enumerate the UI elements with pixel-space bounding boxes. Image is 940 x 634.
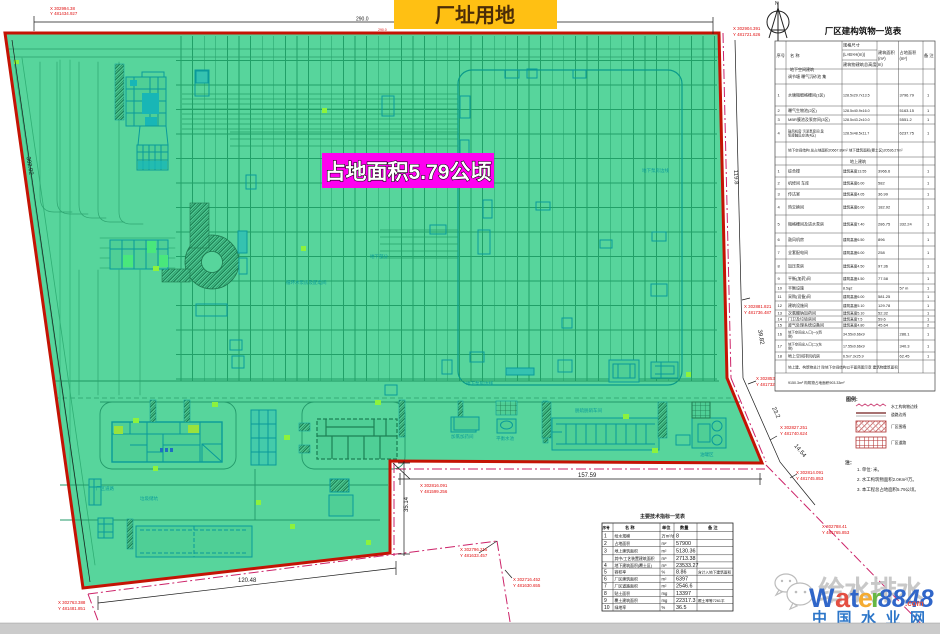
svg-text:给水规模: 给水规模	[615, 533, 631, 538]
svg-text:9150.3m² 构筑物占地面积903.33m²: 9150.3m² 构筑物占地面积903.33m²	[788, 380, 845, 385]
svg-text:X 302763.388: X 302763.388	[58, 600, 86, 605]
svg-text:采购(设备)间: 采购(设备)间	[788, 293, 811, 299]
svg-text:3: 3	[604, 549, 607, 555]
svg-text:地下泵房边线: 地下泵房边线	[466, 380, 493, 387]
svg-text:建筑面积: 建筑面积	[878, 49, 895, 56]
svg-text:Y 481765.853: Y 481765.853	[822, 530, 850, 535]
svg-text:3796.79: 3796.79	[900, 93, 915, 98]
svg-text:8: 8	[676, 533, 679, 539]
svg-text:道路边线: 道路边线	[891, 412, 906, 417]
svg-text:水塘粗细格栅间(1区): 水塘粗细格栅间(1区)	[788, 92, 826, 98]
svg-text:57900: 57900	[676, 541, 691, 547]
svg-text:6.5x7.3x25.9: 6.5x7.3x25.9	[843, 355, 864, 359]
svg-text:循环水泵房及配电间: 循环水泵房及配电间	[286, 279, 327, 286]
svg-text:X 302716.452: X 302716.452	[513, 577, 541, 582]
svg-text:m²: m²	[662, 577, 667, 582]
svg-text:建筑高度4.50: 建筑高度4.50	[843, 276, 864, 281]
svg-text:m²: m²	[662, 541, 667, 546]
svg-text:绿地率: 绿地率	[615, 605, 627, 610]
svg-text:地下建筑面积(覆土区): 地下建筑面积(覆土区)	[615, 563, 653, 568]
svg-text:传达室: 传达室	[788, 191, 800, 197]
svg-text:(m²): (m²)	[878, 56, 886, 61]
svg-text:62.45: 62.45	[900, 354, 911, 359]
svg-text:7: 7	[604, 584, 607, 590]
svg-text:128.5x43.2x10.0: 128.5x43.2x10.0	[843, 118, 870, 122]
svg-text:10: 10	[778, 286, 783, 291]
svg-text:单位: 单位	[662, 524, 671, 531]
svg-text:W: W	[809, 583, 835, 613]
svg-text:曝气生物池(2区): 曝气生物池(2区)	[788, 107, 818, 113]
svg-text:加压泵房: 加压泵房	[788, 263, 804, 269]
svg-text:8: 8	[604, 591, 607, 597]
svg-text:Y 481633.457: Y 481633.457	[460, 553, 488, 558]
svg-text:157.59: 157.59	[578, 473, 597, 479]
svg-text:规格尺寸: 规格尺寸	[843, 42, 860, 49]
svg-text:注：: 注：	[845, 459, 855, 466]
svg-text:脱硫脱硝车间: 脱硫脱硝车间	[575, 407, 602, 414]
svg-text:氧接触反应池(4区): 氧接触反应池(4区)	[788, 133, 816, 138]
svg-text:16: 16	[778, 332, 783, 337]
svg-text:厂址用地: 厂址用地	[435, 4, 515, 27]
svg-text:52.32: 52.32	[878, 311, 889, 316]
svg-text:侧): 侧)	[788, 346, 793, 351]
svg-text:Y 481721.626: Y 481721.626	[733, 32, 761, 37]
svg-text:128.5x48.5x11.7: 128.5x48.5x11.7	[843, 132, 869, 136]
svg-text:36.99: 36.99	[878, 192, 889, 197]
svg-text:119.8: 119.8	[732, 170, 739, 186]
svg-text:建筑设施间: 建筑设施间	[788, 302, 808, 308]
svg-text:5163.15: 5163.15	[900, 108, 915, 113]
svg-text:120.48: 120.48	[238, 578, 257, 584]
svg-text:粗格栅间及进水泵房: 粗格栅间及进水泵房	[788, 221, 824, 227]
svg-text:17: 17	[778, 344, 783, 349]
svg-text:油罐区: 油罐区	[700, 451, 714, 458]
svg-text:13397: 13397	[676, 591, 691, 597]
svg-text:Y 481736.487: Y 481736.487	[744, 310, 772, 315]
svg-text:12: 12	[778, 303, 783, 308]
svg-text:建筑高度6.00: 建筑高度6.00	[843, 250, 864, 255]
svg-text:6237.75: 6237.75	[900, 131, 915, 136]
svg-text:建筑高度13.55: 建筑高度13.55	[843, 169, 866, 174]
svg-text:建筑高度5.10: 建筑高度5.10	[843, 311, 864, 316]
svg-text:286.1: 286.1	[900, 332, 911, 337]
svg-text:X 302881.821: X 302881.821	[744, 304, 772, 309]
svg-text:1: 1	[604, 533, 607, 539]
svg-text:896: 896	[878, 237, 885, 242]
svg-text:8.5φ2: 8.5φ2	[843, 287, 852, 291]
svg-text:MBR膜池及泵房间(3区): MBR膜池及泵房间(3区)	[788, 116, 830, 122]
svg-text:序号: 序号	[777, 52, 785, 59]
svg-text:59.6: 59.6	[878, 317, 887, 322]
svg-text:m²: m²	[662, 584, 667, 589]
svg-text:含计入地下建筑面积: 含计入地下建筑面积	[698, 570, 731, 575]
svg-text:582: 582	[878, 181, 885, 186]
svg-text:6: 6	[604, 577, 607, 583]
svg-text:调节塘 曝气沉砂池 集: 调节塘 曝气沉砂池 集	[788, 73, 826, 79]
svg-text:数量: 数量	[680, 524, 689, 531]
svg-text:2: 2	[604, 541, 607, 547]
svg-text:名 称: 名 称	[790, 52, 800, 59]
svg-text:Y 481599.256: Y 481599.256	[420, 489, 448, 494]
svg-text:m²: m²	[662, 549, 667, 554]
svg-text:覆土率等7261平: 覆土率等7261平	[698, 598, 725, 603]
svg-text:X 302827.251: X 302827.251	[780, 425, 808, 430]
svg-text:废气处理系统设备间: 废气处理系统设备间	[788, 322, 824, 328]
svg-text:%: %	[662, 605, 666, 610]
svg-text:建筑高度6.00: 建筑高度6.00	[843, 294, 864, 299]
svg-text:门卫及垃圾房间: 门卫及垃圾房间	[788, 316, 816, 322]
svg-text:地下空间出入口(一)(西: 地下空间出入口(一)(西	[788, 330, 823, 335]
svg-text:128.5x29.7x13.5: 128.5x29.7x13.5	[843, 94, 870, 98]
svg-text:备 注: 备 注	[708, 524, 718, 531]
svg-text:3. 本工程总占地面积5.79公顷。: 3. 本工程总占地面积5.79公顷。	[857, 486, 919, 493]
svg-text:2713.38: 2713.38	[676, 556, 696, 562]
svg-text:a: a	[835, 583, 851, 613]
svg-text:容积率: 容积率	[615, 570, 627, 575]
svg-text:次氯酸钠加药间: 次氯酸钠加药间	[788, 310, 816, 316]
svg-text:其中/工艺装置建筑面积: 其中/工艺装置建筑面积	[615, 556, 655, 561]
svg-text:Y 481745.853: Y 481745.853	[796, 476, 824, 481]
svg-text:Y 481434.927: Y 481434.927	[50, 11, 78, 16]
svg-text:厂区道路: 厂区道路	[891, 440, 906, 445]
svg-text:厂区建构筑物一览表: 厂区建构筑物一览表	[825, 26, 902, 36]
svg-text:340.3: 340.3	[900, 344, 911, 349]
svg-text:地上建、构筑物总计 除地下空间结构以平面简图示意 建筑物建: 地上建、构筑物总计 除地下空间结构以平面简图示意 建筑物建筑面积	[788, 365, 898, 370]
svg-text:鼓风机房: 鼓风机房	[788, 236, 804, 242]
svg-text:厂区道路面积: 厂区道路面积	[615, 584, 638, 589]
svg-text:290.0: 290.0	[378, 28, 387, 32]
svg-text:X 302814.091: X 302814.091	[796, 470, 824, 475]
svg-text:X 302796.216: X 302796.216	[460, 547, 488, 552]
svg-text:建筑高度7.40: 建筑高度7.40	[843, 222, 864, 227]
svg-text:N: N	[775, 1, 779, 7]
svg-text:占地面积5.79公顷: 占地面积5.79公顷	[325, 160, 492, 184]
svg-text:581.25: 581.25	[878, 294, 891, 299]
svg-text:平衡水池: 平衡水池	[496, 435, 514, 442]
svg-text:8.86: 8.86	[676, 570, 687, 576]
svg-text:mg: mg	[662, 591, 668, 596]
svg-text:地下空间出入口(二)(东: 地下空间出入口(二)(东	[788, 342, 823, 347]
svg-text:综合楼: 综合楼	[788, 168, 800, 174]
svg-text:加氯加药间: 加氯加药间	[451, 433, 474, 440]
svg-text:地下泵房边线: 地下泵房边线	[642, 167, 669, 174]
svg-text:建筑高度6.50: 建筑高度6.50	[843, 237, 864, 242]
svg-text:10: 10	[604, 605, 610, 611]
svg-text:平衡(加药)间: 平衡(加药)间	[788, 275, 811, 281]
svg-text:182.92: 182.92	[878, 205, 891, 210]
svg-text:57 m: 57 m	[900, 286, 910, 291]
svg-text:X 302816.091: X 302816.091	[420, 483, 448, 488]
svg-text:机修间 车库: 机修间 车库	[788, 180, 809, 186]
svg-text:45.64: 45.64	[878, 323, 889, 328]
svg-text:覆土建筑面积: 覆土建筑面积	[615, 598, 638, 603]
svg-text:2546.6: 2546.6	[676, 584, 693, 590]
svg-text:3966.6: 3966.6	[878, 169, 891, 174]
svg-text:2. 水工构筑物面积2.0Km²/万。: 2. 水工构筑物面积2.0Km²/万。	[857, 476, 917, 483]
svg-text:9: 9	[604, 598, 607, 604]
svg-text:97.36: 97.36	[878, 264, 889, 269]
svg-text:m³: m³	[662, 556, 667, 561]
svg-text:m³: m³	[662, 563, 667, 568]
svg-text:14: 14	[778, 317, 783, 322]
svg-text:建筑物建筑总高度(m): 建筑物建筑总高度(m)	[843, 61, 883, 68]
svg-text:77.58: 77.58	[878, 276, 889, 281]
svg-text:占地面积: 占地面积	[900, 49, 917, 56]
svg-text:5551.2: 5551.2	[900, 117, 913, 122]
svg-text:17.55x0.66x9: 17.55x0.66x9	[843, 345, 865, 349]
svg-text:290.0: 290.0	[356, 17, 369, 23]
svg-text:.com: .com	[905, 599, 924, 608]
svg-text:(L×B×H(m)): (L×B×H(m))	[843, 52, 866, 57]
svg-text:13: 13	[778, 311, 783, 316]
svg-text:地下部分: 地下部分	[370, 253, 388, 260]
svg-text:备 注: 备 注	[924, 52, 934, 59]
svg-text:286.75: 286.75	[878, 222, 891, 227]
svg-text:地下空间结构 总占地面积20667.89m² 地下建筑面积: 地下空间结构 总占地面积20667.89m² 地下建筑面积(覆土区)20536.…	[788, 148, 903, 153]
svg-text:地上空间排风机房: 地上空间排风机房	[788, 353, 820, 359]
svg-text:建筑高度4.80: 建筑高度4.80	[843, 323, 864, 328]
svg-text:序号: 序号	[603, 525, 611, 530]
svg-text:Y 481740.624: Y 481740.624	[780, 431, 808, 436]
svg-text:建筑高度7.5: 建筑高度7.5	[843, 317, 862, 322]
svg-text:5: 5	[604, 570, 607, 576]
svg-text:主要技术指标一览表: 主要技术指标一览表	[640, 513, 686, 520]
svg-text:18: 18	[778, 354, 783, 359]
svg-text:厂区道路: 厂区道路	[96, 485, 114, 492]
svg-text:平衡设施: 平衡设施	[788, 285, 804, 291]
svg-text:23.2: 23.2	[770, 406, 781, 420]
svg-text:建筑高度6.00: 建筑高度6.00	[843, 181, 864, 186]
svg-text:%: %	[662, 570, 666, 575]
svg-text:图例:: 图例:	[846, 396, 858, 403]
svg-text:35.14: 35.14	[404, 496, 410, 512]
svg-text:建筑高度4.05: 建筑高度4.05	[843, 192, 864, 197]
svg-text:垃圾储坑: 垃圾储坑	[140, 495, 158, 502]
svg-text:水工构筑物边线: 水工构筑物边线	[891, 404, 918, 409]
svg-text:22317.3: 22317.3	[676, 598, 696, 604]
svg-text:占地面积: 占地面积	[615, 541, 631, 546]
svg-text:建筑高度5.10: 建筑高度5.10	[843, 303, 864, 308]
svg-text:34.55x0.66x9: 34.55x0.66x9	[843, 333, 865, 337]
svg-text:129.78: 129.78	[878, 303, 891, 308]
svg-text:(m²): (m²)	[900, 56, 908, 61]
svg-text:15: 15	[778, 323, 783, 328]
svg-text:Y 481630.655: Y 481630.655	[513, 583, 541, 588]
svg-text:258: 258	[878, 250, 885, 255]
svg-text:全套配电间: 全套配电间	[788, 249, 808, 255]
svg-text:X 302904.391: X 302904.391	[733, 26, 761, 31]
svg-text:332.24: 332.24	[900, 222, 913, 227]
svg-text:mg: mg	[662, 598, 668, 603]
svg-text:5130.36: 5130.36	[676, 549, 696, 555]
svg-text:厂区围墙: 厂区围墙	[891, 424, 906, 429]
svg-text:1. 单位: 米。: 1. 单位: 米。	[857, 466, 882, 473]
svg-text:建筑高度6.00: 建筑高度6.00	[843, 205, 864, 210]
svg-text:36.5: 36.5	[676, 605, 687, 611]
svg-text:地下空间建筑: 地下空间建筑	[790, 66, 814, 72]
svg-text:4: 4	[604, 563, 607, 569]
svg-text:厂区建筑面积: 厂区建筑面积	[615, 577, 638, 582]
svg-text:贴土面积: 贴土面积	[615, 591, 631, 596]
svg-text:X 302788.41: X 302788.41	[822, 524, 847, 529]
svg-text:地上建筑: 地上建筑	[850, 158, 866, 164]
svg-text:39.82: 39.82	[756, 329, 765, 345]
svg-text:地上建筑面积: 地上建筑面积	[615, 549, 638, 554]
svg-text:14.54: 14.54	[792, 443, 807, 459]
svg-text:Y 481481.851: Y 481481.851	[58, 606, 86, 611]
svg-text:6397: 6397	[676, 577, 688, 583]
svg-text:侧): 侧)	[788, 334, 793, 339]
svg-text:名 称: 名 称	[625, 524, 635, 531]
svg-text:建筑高度4.50: 建筑高度4.50	[843, 264, 864, 269]
svg-text:128.5x40.9x16.0: 128.5x40.9x16.0	[843, 109, 870, 113]
svg-text:23533.27: 23533.27	[676, 563, 698, 569]
svg-text:热交换间: 热交换间	[788, 204, 804, 210]
